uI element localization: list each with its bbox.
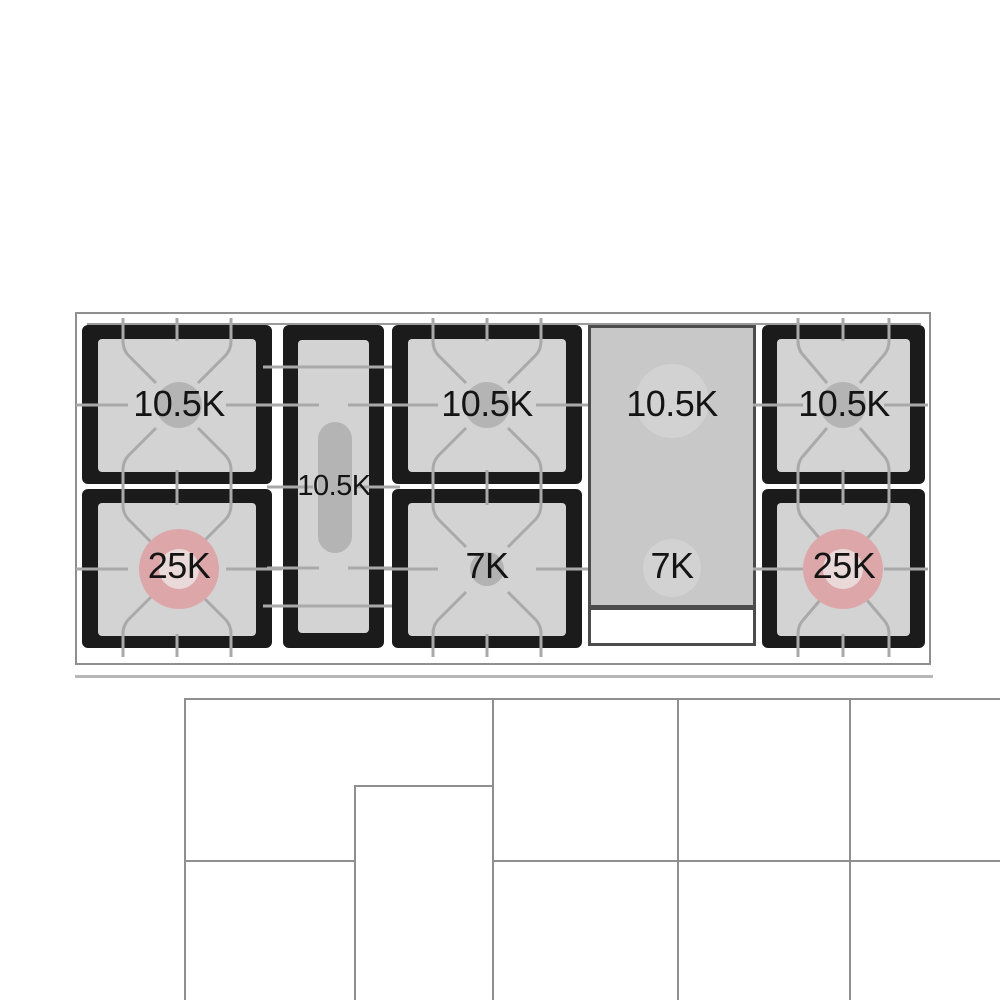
burner-label: 7K BTU	[602, 548, 742, 584]
burner-unit: BTU	[849, 860, 1000, 1000]
burner-label: 7K BTU	[417, 548, 557, 584]
burner-power: 10.5K	[774, 386, 914, 422]
burner-label: 10.5K BTU	[109, 386, 249, 422]
burner-power: 7K	[602, 548, 742, 584]
cooktop-diagram: 10.5K BTU 25K BTU 10.5K BTU 10.5K BTU 7K…	[0, 0, 1000, 1000]
front-edge-line	[75, 675, 933, 678]
burner-power: 7K	[417, 548, 557, 584]
burner-power: 25K	[109, 548, 249, 584]
burner-label: 25K BTU	[109, 548, 249, 584]
burner-power: 25K	[774, 548, 914, 584]
griddle-front-tray	[588, 607, 756, 646]
burner-label: 10.5K BTU	[602, 386, 742, 422]
burner-label: 10.5K BTU	[417, 386, 557, 422]
burner-power: 10.5K	[417, 386, 557, 422]
burner-power: 10.5K	[602, 386, 742, 422]
burner-power: 10.5K	[109, 386, 249, 422]
burner-label: 10.5K BTU	[774, 386, 914, 422]
burner-label: 25K BTU	[774, 548, 914, 584]
burner-label: 10.5K BTU	[279, 471, 389, 501]
burner-power: 10.5K	[279, 471, 389, 501]
